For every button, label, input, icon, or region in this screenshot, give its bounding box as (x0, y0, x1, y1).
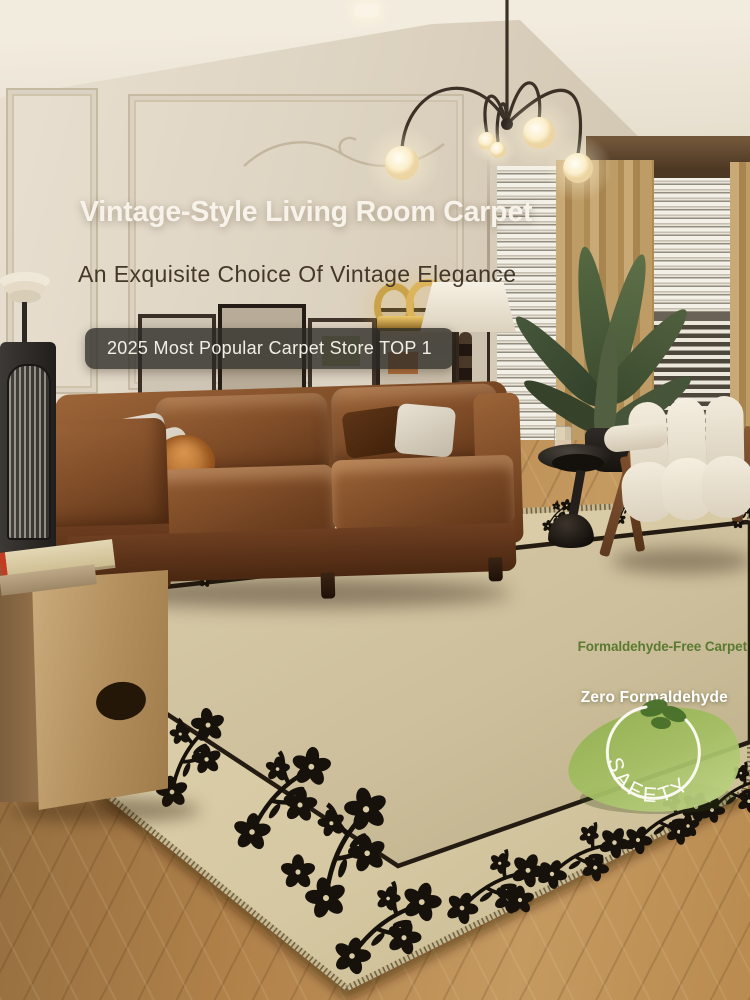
sofa-leg (321, 572, 336, 598)
box-handle-hole (94, 679, 149, 724)
sofa-leg (488, 557, 503, 581)
page-title: Vintage-Style Living Room Carpet (80, 196, 680, 229)
chandelier-globes (364, 97, 612, 202)
rank-badge: 2025 Most Popular Carpet Store TOP 1 (85, 328, 454, 369)
page-subtitle: An Exquisite Choice Of Vintage Elegance (78, 261, 678, 288)
box-front (32, 570, 168, 810)
feature-formaldehyde-free: Formaldehyde-Free Carpet (578, 639, 747, 654)
safety-badge: SAFETY (558, 690, 750, 824)
product-photo: Vintage-Style Living Room Carpet An Exqu… (0, 0, 750, 1000)
cardboard-box-group (0, 542, 200, 842)
